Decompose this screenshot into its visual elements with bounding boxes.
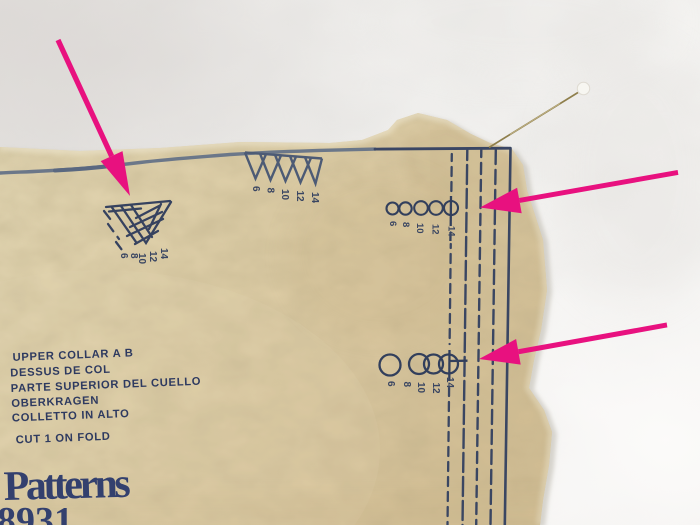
svg-text:8: 8 [265, 188, 276, 194]
svg-text:8: 8 [401, 382, 412, 388]
svg-text:6: 6 [387, 221, 398, 226]
svg-text:12: 12 [147, 251, 158, 263]
svg-text:14: 14 [309, 192, 320, 204]
svg-text:14: 14 [444, 377, 455, 389]
svg-text:6: 6 [250, 186, 261, 192]
svg-text:10: 10 [415, 382, 426, 394]
svg-text:12: 12 [430, 383, 441, 395]
svg-text:6: 6 [385, 381, 396, 387]
svg-text:6: 6 [118, 253, 129, 259]
svg-text:10: 10 [414, 223, 425, 234]
svg-text:12: 12 [430, 224, 441, 235]
svg-text:14: 14 [446, 226, 457, 237]
svg-text:10: 10 [279, 189, 290, 201]
svg-text:12: 12 [294, 191, 305, 203]
svg-text:8931: 8931 [0, 500, 73, 525]
svg-text:14: 14 [158, 248, 169, 260]
svg-text:8: 8 [400, 222, 411, 227]
